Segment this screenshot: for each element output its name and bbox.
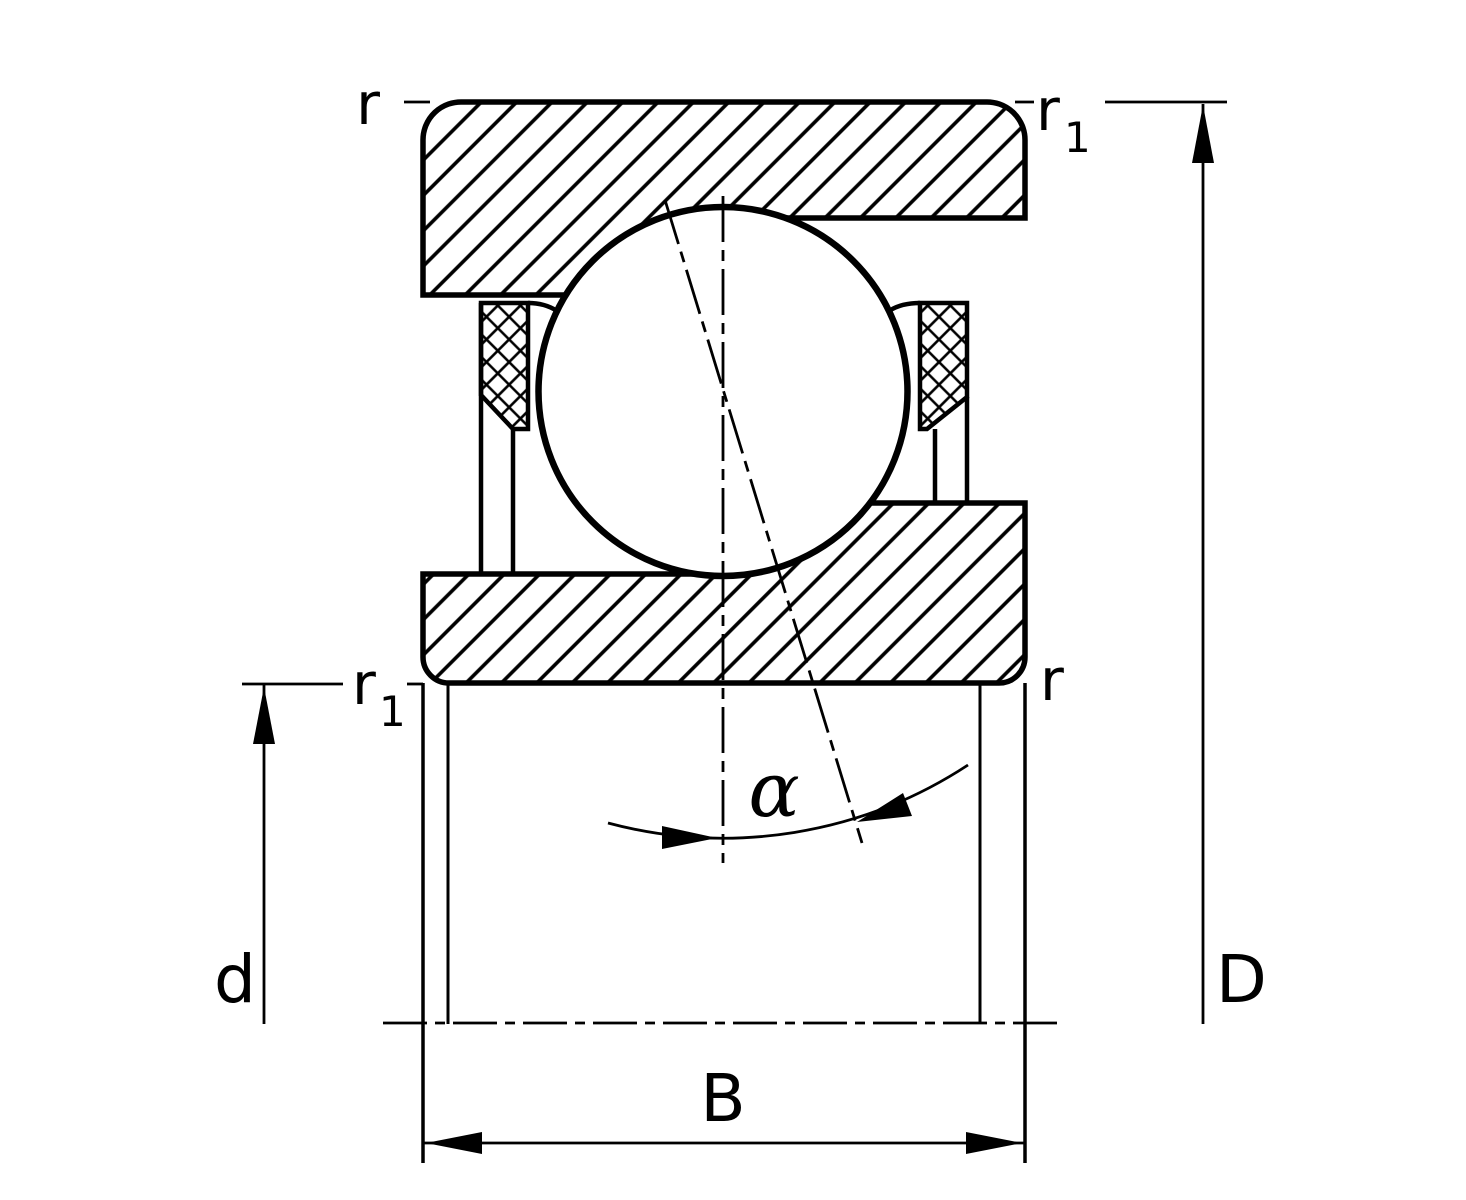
B-arrow-left-icon — [426, 1132, 482, 1154]
label-r-top-left: r — [356, 70, 380, 138]
angle-arrow-left-icon — [662, 826, 717, 849]
B-arrow-right-icon — [966, 1132, 1022, 1154]
label-r1-top-right-sub: 1 — [1064, 113, 1091, 162]
angle-arrow-right-icon — [857, 793, 912, 822]
label-r1-top-right: r — [1036, 76, 1060, 144]
label-r1-mid-left: r — [352, 650, 376, 718]
D-arrow-up-icon — [1192, 105, 1214, 163]
d-arrow-up-icon — [253, 687, 275, 744]
label-D: D — [1216, 941, 1267, 1018]
label-r1-mid-left-sub: 1 — [379, 687, 406, 736]
bearing-drawing: r r 1 r 1 r d D B α — [0, 0, 1466, 1200]
cage-left-pocket-lip — [528, 303, 557, 311]
cage-right-pocket-lip — [889, 303, 920, 311]
label-d: d — [214, 941, 256, 1018]
drawing-canvas: r r 1 r 1 r d D B α — [0, 0, 1466, 1200]
label-alpha: α — [748, 745, 799, 834]
label-B: B — [700, 1060, 745, 1137]
label-r-mid-right: r — [1040, 646, 1064, 714]
D-dimension — [1015, 102, 1227, 1024]
